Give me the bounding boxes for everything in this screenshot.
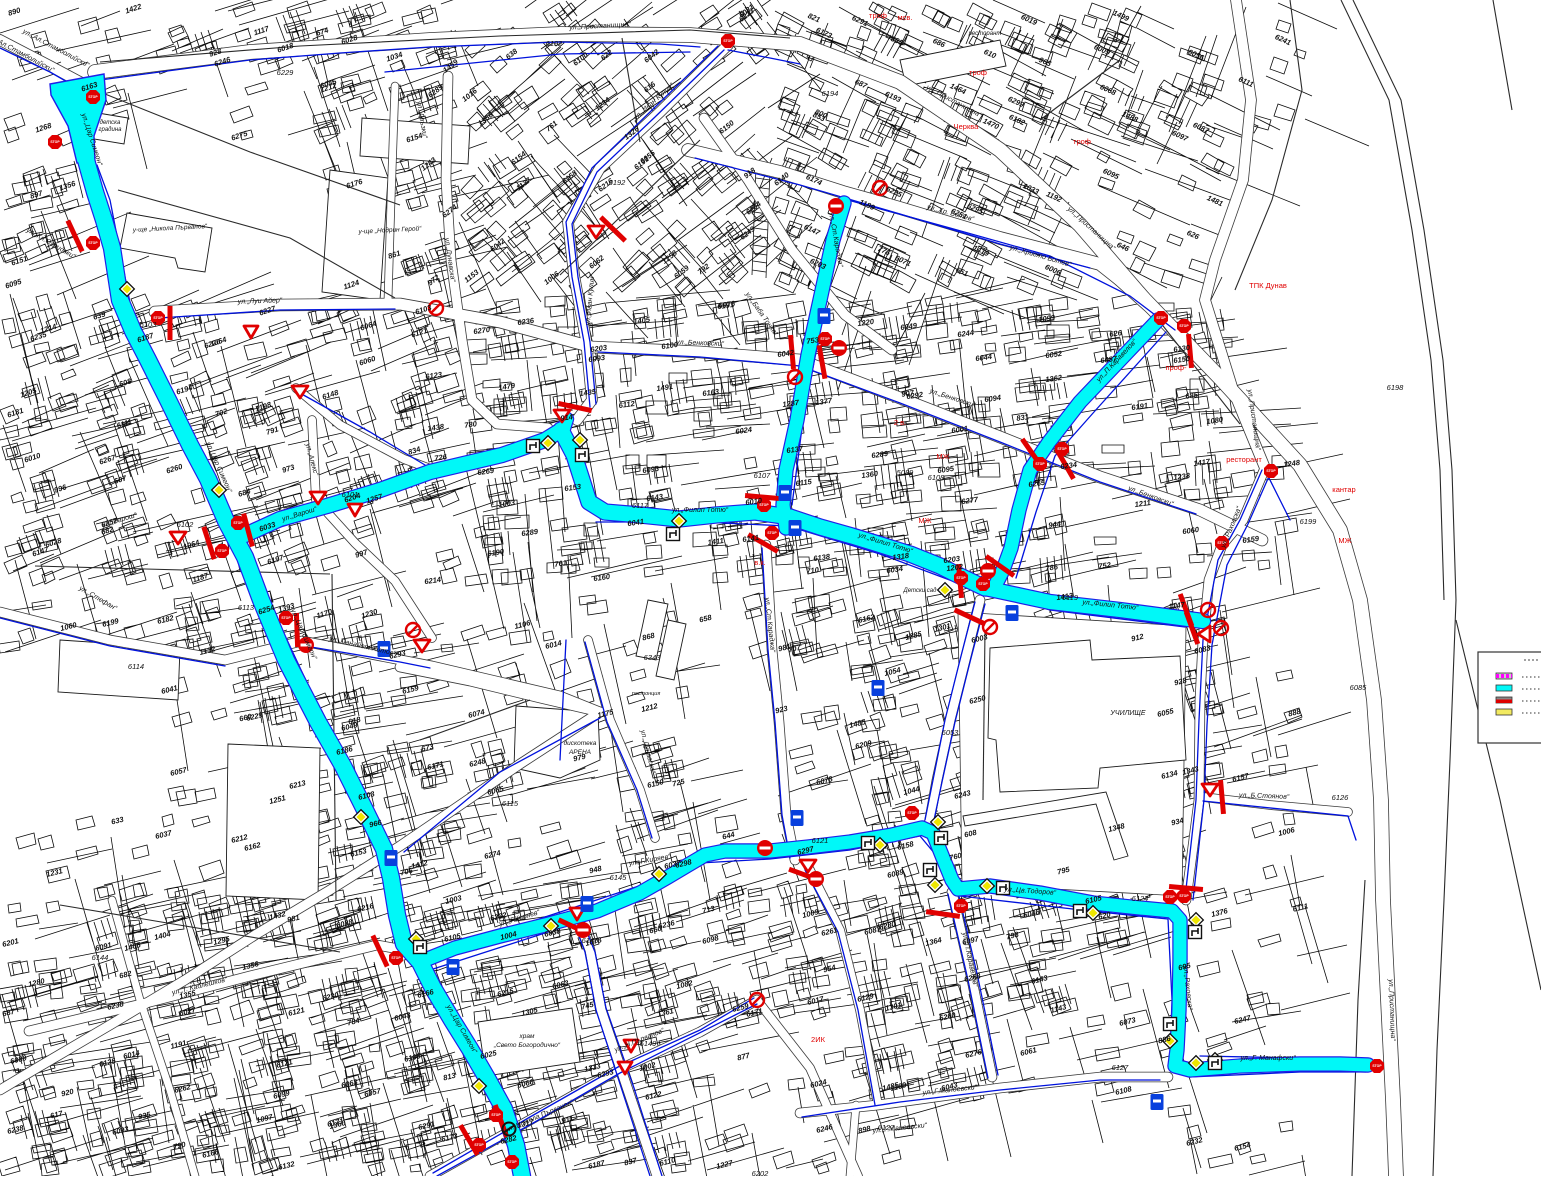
svg-text:944: 944: [1048, 519, 1062, 530]
svg-text:6101: 6101: [342, 490, 359, 499]
svg-text:6124: 6124: [1132, 894, 1149, 903]
svg-text:троф: троф: [969, 68, 987, 77]
svg-text:6085: 6085: [1350, 683, 1368, 692]
svg-text:МЖ: МЖ: [1338, 536, 1351, 545]
svg-text:6145: 6145: [610, 873, 628, 882]
svg-text:786: 786: [1045, 562, 1059, 573]
svg-text:STOP: STOP: [474, 1143, 484, 1147]
svg-text:831: 831: [1016, 412, 1030, 423]
svg-text:2ИК: 2ИК: [811, 1035, 826, 1044]
svg-text:6192: 6192: [609, 178, 627, 187]
svg-text:STOP: STOP: [767, 531, 777, 535]
svg-text:мсв.: мсв.: [898, 13, 913, 22]
svg-text:6119: 6119: [1062, 593, 1079, 602]
svg-text:ул.„Г. Манафски“: ул.„Г. Манафски“: [1239, 1055, 1296, 1062]
svg-text:6117: 6117: [632, 501, 649, 510]
svg-text:STOP: STOP: [391, 956, 401, 960]
svg-text:STOP: STOP: [1179, 894, 1189, 898]
svg-text:МЖ: МЖ: [936, 452, 949, 461]
svg-text:ТПК Дунав: ТПК Дунав: [1249, 281, 1287, 290]
svg-text:6144: 6144: [92, 953, 109, 962]
svg-text:STOP: STOP: [507, 1160, 517, 1164]
svg-text:753: 753: [806, 335, 820, 346]
svg-text:STOP: STOP: [281, 616, 291, 620]
svg-text:6115: 6115: [502, 799, 519, 808]
svg-text:6343: 6343: [644, 653, 662, 662]
svg-text:6127: 6127: [1112, 1063, 1130, 1072]
svg-text:STOP: STOP: [50, 140, 60, 144]
svg-text:STOP: STOP: [956, 576, 966, 580]
svg-text:5089: 5089: [897, 468, 915, 477]
svg-text:6121: 6121: [812, 836, 829, 845]
svg-text:STOP: STOP: [88, 95, 98, 99]
svg-text:6229: 6229: [277, 68, 295, 77]
svg-text:храм: храм: [519, 1033, 535, 1040]
svg-text:6149: 6149: [640, 1039, 658, 1048]
svg-text:914: 914: [560, 412, 574, 423]
svg-text:STOP: STOP: [233, 521, 243, 525]
svg-text:6107: 6107: [754, 471, 772, 480]
svg-text:STOP: STOP: [88, 241, 98, 245]
svg-text:6108: 6108: [928, 473, 946, 482]
svg-text:Детски сад: Детски сад: [903, 588, 938, 594]
svg-text:STOP: STOP: [1372, 1064, 1382, 1068]
svg-text:710: 710: [806, 565, 820, 576]
svg-text:STOP: STOP: [723, 39, 733, 43]
svg-text:6202: 6202: [752, 1169, 770, 1176]
svg-text:685: 685: [1185, 390, 1199, 401]
svg-text:ресторант: ресторант: [968, 31, 1002, 37]
svg-text:ресторант: ресторант: [1226, 455, 1262, 464]
svg-text:STOP: STOP: [217, 549, 227, 553]
svg-text:в.к.: в.к.: [754, 558, 765, 567]
svg-text:6146: 6146: [582, 936, 600, 945]
svg-text:6126: 6126: [1332, 793, 1350, 802]
svg-text:6127: 6127: [878, 1123, 896, 1132]
svg-text:детска: детска: [100, 120, 121, 126]
svg-text:STOP: STOP: [1266, 469, 1276, 473]
svg-text:752: 752: [1098, 560, 1112, 571]
svg-text:6192: 6192: [546, 39, 564, 48]
svg-text:„Свето Богородично“: „Свето Богородично“: [493, 1041, 561, 1049]
svg-text:6199: 6199: [1300, 517, 1318, 526]
svg-text:2 в.: 2 в.: [894, 418, 906, 427]
svg-text:6102: 6102: [177, 520, 195, 529]
svg-text:907: 907: [901, 388, 915, 399]
svg-text:STOP: STOP: [1057, 447, 1067, 451]
svg-text:растонция: растонция: [631, 691, 661, 697]
svg-text:780: 780: [464, 419, 478, 430]
svg-text:ул.„Филип Тотю“: ул.„Филип Тотю“: [671, 507, 729, 514]
svg-text:6114: 6114: [128, 662, 144, 671]
svg-text:STOP: STOP: [1035, 462, 1045, 466]
svg-text:STOP: STOP: [491, 1113, 501, 1117]
svg-text:троф: троф: [869, 11, 887, 20]
svg-text:STOP: STOP: [1179, 324, 1189, 328]
svg-text:троф: троф: [1073, 137, 1091, 146]
svg-text:6198: 6198: [1387, 383, 1405, 392]
svg-text:626: 626: [1109, 328, 1123, 339]
svg-text:Черква: Черква: [954, 122, 980, 131]
svg-text:761: 761: [554, 558, 568, 569]
svg-text:726: 726: [434, 452, 448, 463]
svg-text:STOP: STOP: [820, 337, 830, 341]
svg-text:МЖ: МЖ: [918, 516, 931, 525]
svg-text:6113: 6113: [238, 603, 255, 612]
svg-text:STOP: STOP: [1165, 895, 1175, 899]
svg-text:дискотека: дискотека: [564, 739, 597, 747]
svg-text:кантар: кантар: [1332, 485, 1355, 494]
svg-text:STOP: STOP: [956, 904, 966, 908]
svg-text:STOP: STOP: [907, 811, 917, 815]
svg-text:6103: 6103: [140, 320, 158, 329]
svg-text:УЧИЛИЩЕ: УЧИЛИЩЕ: [1109, 710, 1145, 717]
svg-text:6053: 6053: [942, 728, 960, 737]
svg-text:ул.„Луи Айер“: ул.„Луи Айер“: [237, 296, 283, 306]
svg-text:6194: 6194: [822, 89, 839, 98]
svg-text:STOP: STOP: [1156, 316, 1166, 320]
svg-text:градина: градина: [99, 127, 123, 133]
svg-text:STOP: STOP: [978, 582, 988, 586]
